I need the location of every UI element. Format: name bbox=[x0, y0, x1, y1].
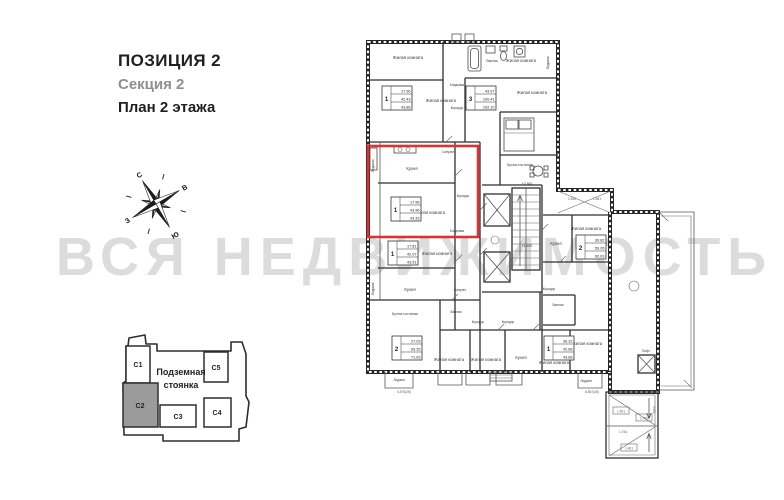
room-label: Ванная bbox=[451, 310, 462, 314]
room-label: Лоджия bbox=[546, 56, 550, 69]
room-label: Лоджия bbox=[371, 159, 375, 172]
section-label: С5 bbox=[212, 365, 221, 372]
room-label: Жилая комната bbox=[426, 98, 457, 103]
ramp-slope: 3.6% bbox=[652, 406, 656, 413]
compass-star bbox=[119, 167, 193, 241]
room-label: Коридор bbox=[451, 106, 464, 110]
elevator-shaft bbox=[484, 194, 510, 226]
ramp-dim: 1.744 bbox=[619, 430, 627, 434]
svg-text:43.51: 43.51 bbox=[407, 261, 417, 265]
room-label: Коридор bbox=[457, 194, 470, 198]
grid-marker bbox=[629, 281, 639, 291]
svg-text:43.96: 43.96 bbox=[410, 209, 420, 213]
room-label: Кладовая bbox=[450, 229, 465, 233]
room-label: Жилая комната bbox=[434, 357, 465, 362]
room-label: Кухня-гостиная bbox=[392, 312, 418, 316]
svg-text:42.43: 42.43 bbox=[401, 98, 411, 102]
room-label: Кухня bbox=[404, 287, 415, 292]
room-label: Жилая комната bbox=[393, 55, 424, 60]
svg-text:17.96: 17.96 bbox=[401, 90, 411, 94]
lift-box bbox=[638, 355, 655, 373]
room-label: Лоджия bbox=[580, 379, 592, 383]
room-label: Кухня bbox=[406, 166, 417, 171]
room-label: Ванная bbox=[487, 59, 498, 63]
dim-label: 6.867(4б) bbox=[585, 390, 599, 394]
compass-letter-south: Ю bbox=[171, 231, 181, 241]
room-label: Жилая комната bbox=[539, 360, 570, 365]
svg-text:60.63: 60.63 bbox=[595, 255, 605, 259]
room-label: Коридор bbox=[543, 287, 556, 291]
room-label: Санузел bbox=[442, 150, 455, 154]
apartment-table: 1 17.96 42.43 43.88 bbox=[382, 86, 412, 110]
svg-text:30.82: 30.82 bbox=[595, 239, 605, 243]
furniture bbox=[370, 118, 548, 177]
svg-text:42.07: 42.07 bbox=[407, 253, 417, 257]
stairwell bbox=[512, 188, 540, 270]
apartment-table: 1 17.81 42.07 43.51 bbox=[388, 241, 418, 265]
room-label: Жилая комната bbox=[571, 226, 602, 231]
grid-marker bbox=[491, 236, 499, 244]
svg-text:17.81: 17.81 bbox=[407, 245, 417, 249]
dim-label: 4.570(2б) bbox=[397, 390, 411, 394]
svg-text:100.41: 100.41 bbox=[483, 98, 495, 102]
level-mark: +1.400 bbox=[522, 244, 533, 248]
room-label: Жилая комната bbox=[572, 341, 603, 346]
room-label: Ванная bbox=[553, 303, 564, 307]
compass-rose: С В Ю З bbox=[108, 155, 208, 257]
parking-label: стоянка bbox=[164, 380, 200, 390]
loggia-box bbox=[385, 372, 602, 388]
svg-text:43.97: 43.97 bbox=[485, 90, 495, 94]
svg-text:43.33: 43.33 bbox=[410, 217, 420, 221]
room-label: Кладовая bbox=[450, 83, 465, 87]
section-label: С1 bbox=[134, 362, 143, 369]
section-label: С3 bbox=[174, 414, 183, 421]
room-label: Жилая комната bbox=[471, 357, 502, 362]
parking-label: Подземная bbox=[156, 367, 205, 377]
ramp: 1.401 1.702 1.744 1.401 3.6% bbox=[606, 392, 658, 458]
compass-letter-east: В bbox=[181, 184, 189, 193]
svg-text:43.68: 43.68 bbox=[563, 356, 573, 360]
svg-text:42.68: 42.68 bbox=[563, 348, 573, 352]
compass-letter-west: З bbox=[124, 217, 132, 226]
room-label: Жилая комната bbox=[517, 90, 548, 95]
room-label: Коридор bbox=[502, 320, 515, 324]
red-highlight-frame bbox=[368, 146, 478, 237]
room-label: Лифт bbox=[642, 349, 650, 353]
dim-label: 1.561 bbox=[593, 197, 601, 201]
dim-label: 1.545 bbox=[568, 197, 576, 201]
room-label: Кухня-гостиная bbox=[507, 163, 533, 167]
svg-text:27.03: 27.03 bbox=[411, 340, 421, 344]
room-label: Лоджия bbox=[371, 282, 375, 295]
svg-text:43.88: 43.88 bbox=[401, 106, 411, 110]
section-label: С2 bbox=[136, 403, 145, 410]
apartment-table: 1 36.32 42.68 43.68 bbox=[544, 336, 574, 360]
section-label: С4 bbox=[213, 410, 222, 417]
room-label: Кухня bbox=[515, 355, 526, 360]
apartment-table: 3 43.97 100.41 102.10 bbox=[466, 86, 496, 110]
ramp-dim: 1.401 bbox=[617, 410, 625, 414]
floor-plan: 1.545 1.561 1.401 1.702 1.744 1.401 bbox=[368, 34, 694, 458]
room-label: Жилая комната bbox=[422, 251, 453, 256]
room-label: Санузел bbox=[454, 288, 467, 292]
compass-letter-north: С bbox=[136, 172, 144, 181]
room-label: Лоджия bbox=[393, 378, 405, 382]
elevator-shaft bbox=[484, 252, 510, 282]
svg-text:69.35: 69.35 bbox=[411, 348, 421, 352]
drawing-layer: 1.545 1.561 1.401 1.702 1.744 1.401 bbox=[0, 0, 784, 500]
svg-text:17.96: 17.96 bbox=[410, 201, 420, 205]
svg-text:102.10: 102.10 bbox=[483, 106, 495, 110]
ramp-dim: 1.401 bbox=[625, 447, 633, 451]
svg-text:59.05: 59.05 bbox=[595, 247, 605, 251]
wing-bracing bbox=[558, 191, 611, 213]
overview-map: С1 С2 С3 С4 С5 Подземная стоянка bbox=[123, 335, 249, 441]
svg-text:71.63: 71.63 bbox=[411, 356, 421, 360]
apartment-table: 1 17.96 43.96 43.33 bbox=[391, 197, 421, 221]
terrace-parapet bbox=[658, 212, 694, 390]
level-mark: +2.800 bbox=[522, 182, 533, 186]
page: ПОЗИЦИЯ 2 Секция 2 План 2 этажа ВСЯ НЕДВ… bbox=[0, 0, 784, 500]
ramp-dim: 1.702 bbox=[640, 417, 648, 421]
apartment-table: 2 30.82 59.05 60.63 bbox=[576, 235, 606, 259]
room-label: Кухня bbox=[550, 241, 561, 246]
svg-text:36.32: 36.32 bbox=[563, 340, 573, 344]
room-label: Коридор bbox=[472, 320, 485, 324]
room-label: Жилая комната bbox=[506, 58, 537, 63]
apartment-table: 2 27.03 69.35 71.63 bbox=[392, 336, 422, 360]
